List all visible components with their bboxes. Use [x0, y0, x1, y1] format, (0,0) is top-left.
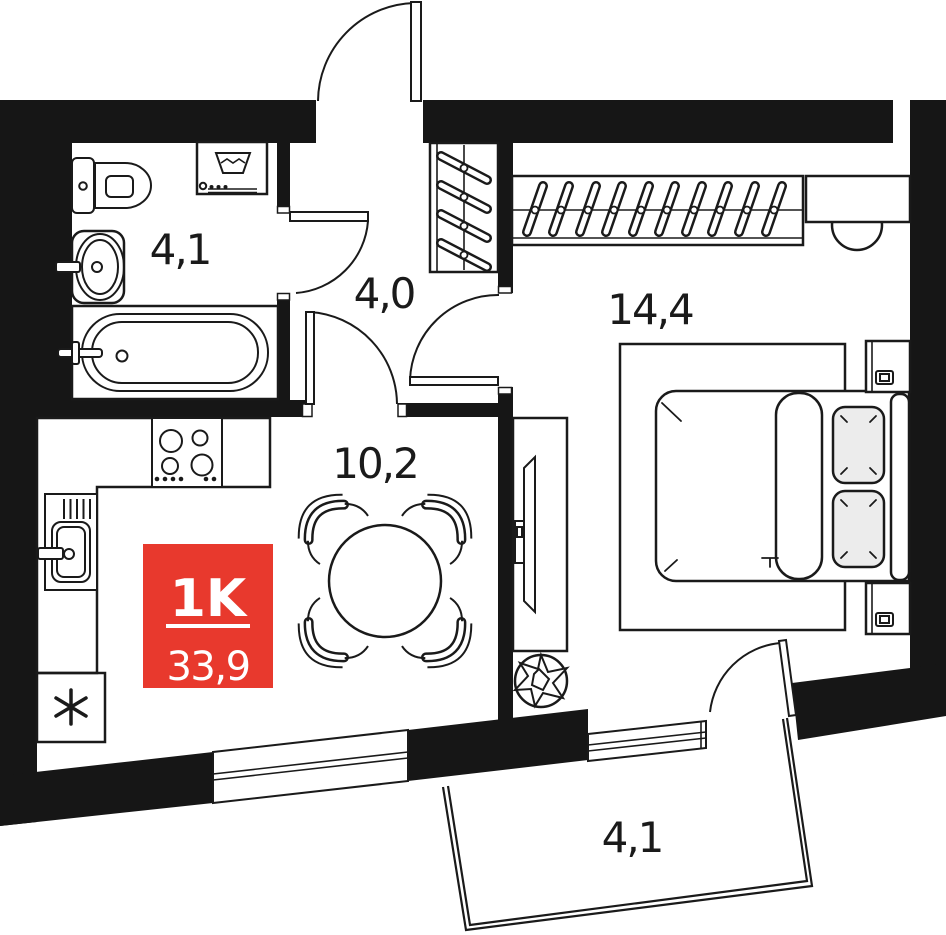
potted-plant: [515, 655, 567, 707]
right-wall: [910, 143, 946, 670]
wall-cap: [499, 287, 512, 294]
tv-unit: [513, 418, 567, 651]
coat-closet: [430, 143, 498, 272]
living-room-door: [306, 312, 397, 404]
nightstand: [866, 341, 910, 392]
living-room-door-leaf: [306, 312, 314, 404]
hallway-south-wall: [398, 403, 513, 417]
kitchen-window: [213, 730, 408, 803]
unit-type-badge: 1K 33,9: [143, 544, 273, 690]
blanket-fold: [776, 393, 822, 579]
dining-table: [329, 525, 441, 637]
wall-cap: [278, 207, 290, 214]
bedroom-partition-south: [498, 387, 513, 722]
entrance-door: [318, 2, 421, 101]
toilet: [72, 158, 151, 213]
wall-cap: [303, 404, 313, 417]
fridge-marker: [37, 673, 105, 742]
headboard: [891, 394, 909, 580]
desk: [806, 176, 910, 222]
nightstand: [866, 583, 910, 634]
bedroom-door-leaf: [410, 377, 498, 385]
bathroom-door-leaf: [290, 212, 368, 221]
washing-machine: [197, 142, 267, 194]
asterisk-icon: [56, 690, 86, 724]
top-wall-right: [910, 100, 946, 143]
wardrobe: [512, 176, 803, 245]
wall-cap: [499, 388, 512, 395]
bathtub: [58, 306, 278, 399]
left-wall-upper: [0, 100, 72, 417]
balcony-door-leaf: [779, 640, 796, 716]
desk-and-stool: [806, 176, 910, 250]
bathroom-south-wall: [72, 400, 310, 417]
bedroom-furniture: [512, 176, 910, 634]
bottom-wall-bedroom: [792, 663, 946, 740]
bottom-wall-kitchen-right: [408, 709, 588, 781]
left-wall-lower: [0, 417, 37, 826]
badge-unit-type: 1K: [170, 569, 248, 629]
tv-screen: [524, 457, 535, 612]
balcony-area-label: 4,1: [602, 813, 663, 862]
pillow: [833, 491, 884, 567]
living-room-window: [588, 721, 706, 761]
entrance-door-leaf: [411, 2, 421, 101]
floor-plan: 4,1 4,0 14,4 10,2 4,1 1K 33,9: [0, 0, 946, 935]
badge-area-value: 33,9: [166, 644, 249, 690]
dining-set: [285, 481, 485, 681]
kitchen-living-area-label: 10,2: [332, 439, 418, 488]
wall-cap: [398, 404, 407, 417]
hallway-area-label: 4,0: [354, 269, 415, 318]
bedroom-area-label: 14,4: [607, 285, 693, 334]
stove: [152, 418, 222, 487]
bedroom-door: [410, 295, 499, 385]
wall-cap: [278, 294, 290, 301]
bathroom-east-wall-upper: [277, 143, 290, 213]
balcony-door: [710, 640, 796, 716]
bed: [656, 391, 909, 581]
pillow: [833, 407, 884, 483]
kitchen-sink: [38, 494, 97, 590]
badge-divider: [166, 624, 250, 628]
bathroom-area-label: 4,1: [150, 225, 211, 274]
top-wall-middle: [423, 100, 893, 143]
